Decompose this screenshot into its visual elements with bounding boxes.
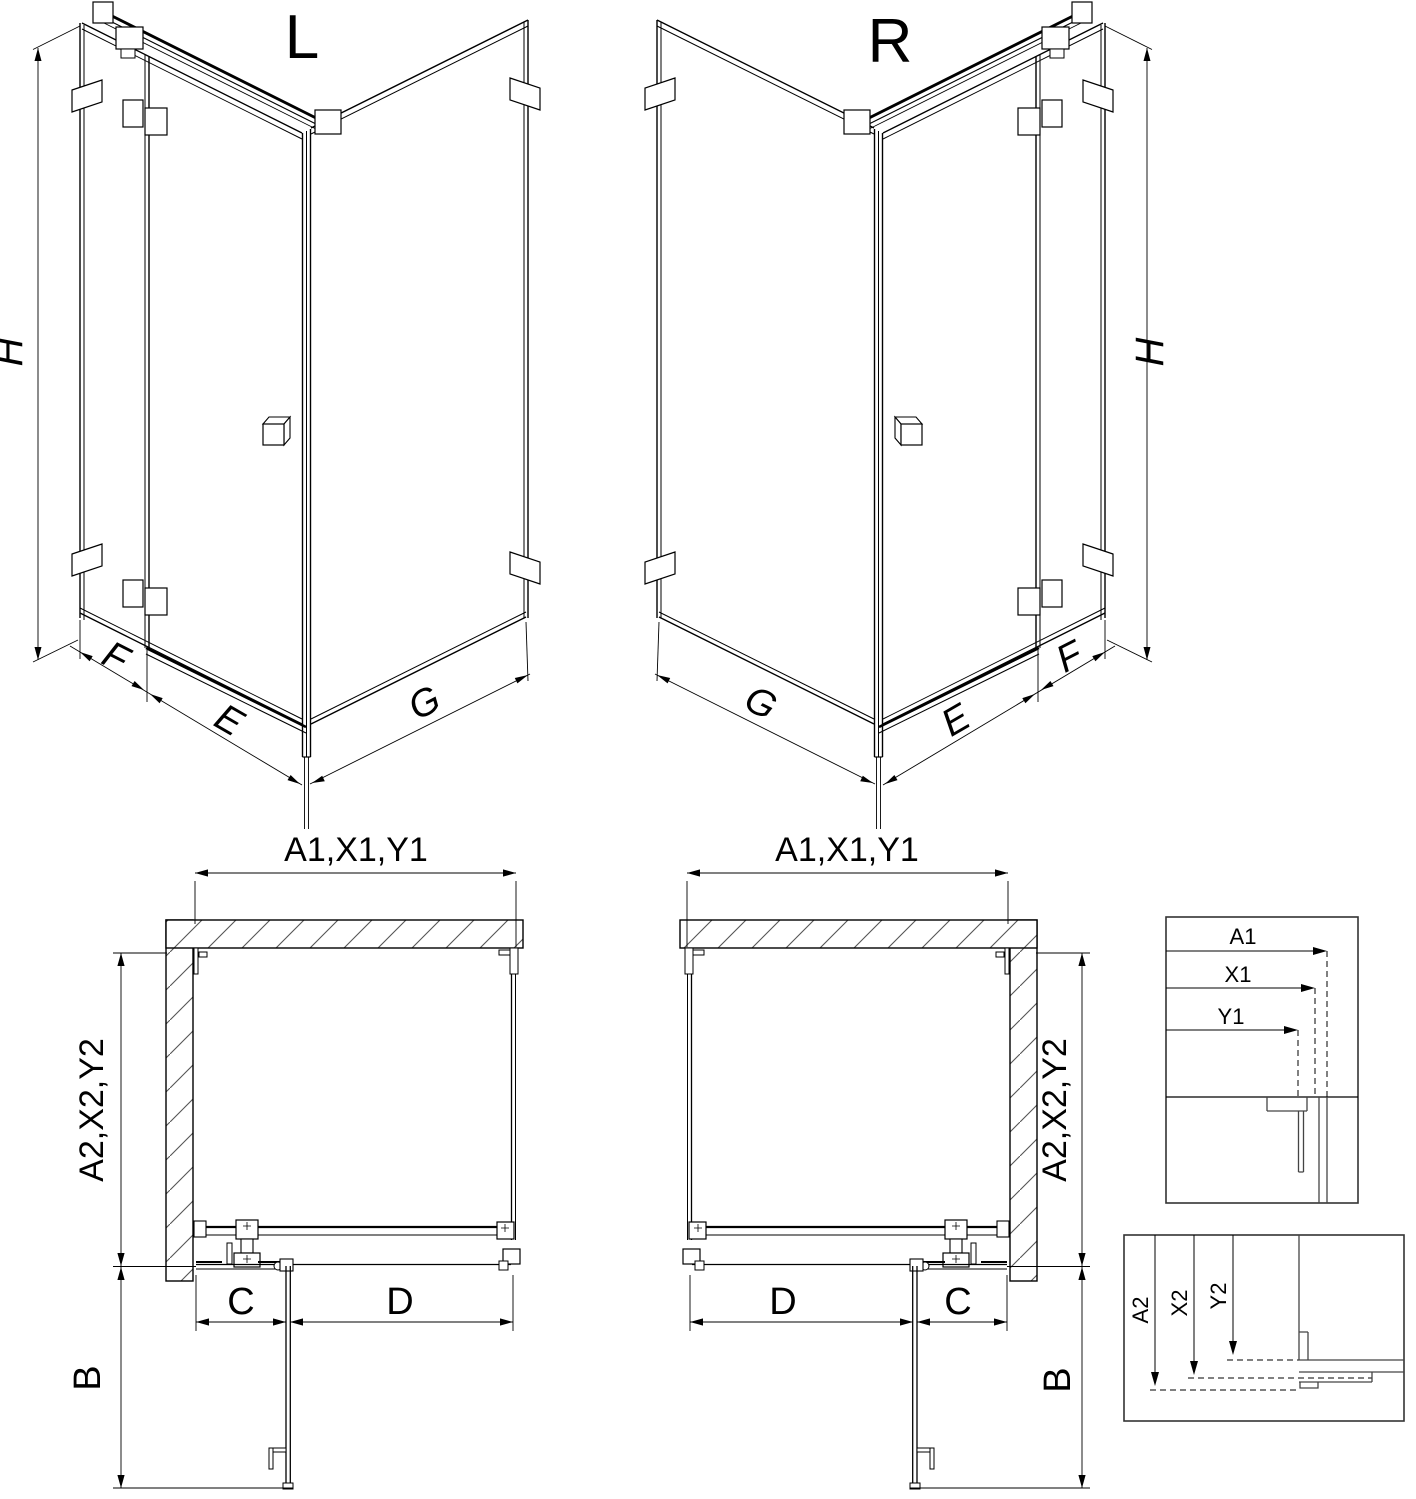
- glass-wall-door: [80, 23, 302, 724]
- door-handle-icon: [263, 417, 290, 445]
- plan-side-glass: [499, 948, 518, 1240]
- dim-h-label-left: H: [0, 337, 31, 366]
- plan-open-door: [269, 1259, 293, 1489]
- dim-b-lines: [113, 1266, 293, 1488]
- dim-a1-label-right: A1,X1,Y1: [775, 831, 919, 869]
- dim-b-label-right: B: [1037, 1367, 1079, 1392]
- dim-c-label-right: C: [944, 1281, 971, 1323]
- dim-d-label-right: D: [769, 1281, 796, 1323]
- dim-f-e-lines: [70, 620, 302, 785]
- view-title-left: L: [285, 3, 319, 72]
- dim-e-label-right: E: [935, 696, 979, 745]
- iso-view-left-linework: [33, 2, 540, 829]
- plan-support-bar: [194, 1220, 514, 1267]
- dim-g-label-left: G: [402, 678, 447, 729]
- dim-h-label-right: H: [1128, 337, 1172, 366]
- detail-label-a2: A2: [1128, 1297, 1153, 1324]
- dim-b-label-left: B: [67, 1365, 109, 1390]
- detail-box-width: A1 X1 Y1: [1166, 917, 1358, 1203]
- plan-wall-stub: [194, 948, 207, 974]
- dim-a2-label-right: A2,X2,Y2: [1036, 1038, 1074, 1182]
- dim-c-label-left: C: [227, 1281, 254, 1323]
- dim-a1-label-left: A1,X1,Y1: [284, 831, 428, 869]
- glass-wall-side: [311, 20, 528, 724]
- dim-d-label-left: D: [386, 1281, 413, 1323]
- dim-e-label-left: E: [208, 696, 252, 745]
- detail-label-x2: X2: [1167, 1290, 1192, 1317]
- corner-post: [303, 129, 311, 829]
- dim-f-label-left: F: [96, 633, 137, 682]
- dim-a2-label-left: A2,X2,Y2: [73, 1038, 111, 1182]
- detail-label-a1: A1: [1230, 924, 1257, 949]
- view-title-right: R: [868, 7, 913, 76]
- dim-f-label-right: F: [1050, 633, 1091, 682]
- technical-drawing-sheet: A1 X1 Y1 A2 X2 Y2 L H F E G R H F E G A1…: [0, 0, 1416, 1499]
- dim-g-label-right: G: [738, 678, 783, 729]
- iso-view-right-linework: [645, 2, 1152, 829]
- detail-box-depth: A2 X2 Y2: [1124, 1235, 1404, 1421]
- detail-label-y1: Y1: [1218, 1004, 1245, 1029]
- detail-label-y2: Y2: [1206, 1283, 1231, 1310]
- detail-label-x1: X1: [1225, 962, 1252, 987]
